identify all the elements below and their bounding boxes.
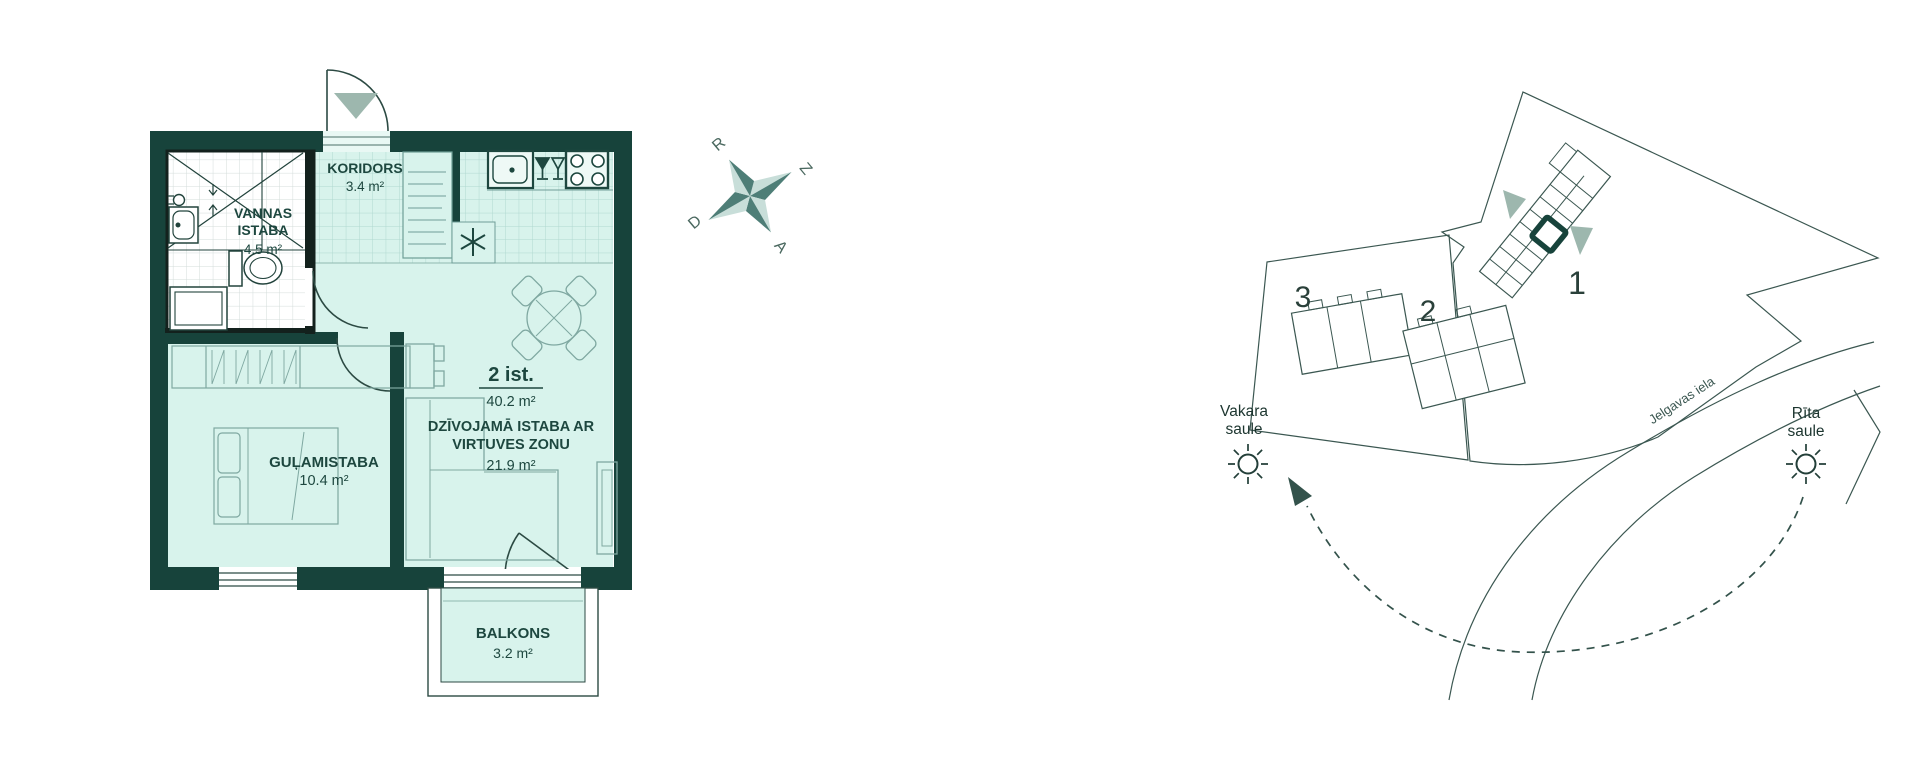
- road-outer-edge: [1449, 342, 1874, 700]
- sun-rays: [1786, 444, 1826, 484]
- washer-inner: [175, 292, 222, 325]
- wall-top-left: [150, 131, 323, 152]
- balcony: BALKONS 3.2 m²: [428, 588, 598, 696]
- evening-sun-label-line1: Vakara: [1220, 403, 1268, 420]
- floorplan-page: VANNAS ISTABA 4.5 m² KORIDORS 3.4 m²: [0, 0, 1920, 768]
- apartment-total-area: 40.2 m²: [486, 394, 535, 410]
- building-1-number: 1: [1568, 265, 1586, 301]
- washbasin-tap: [176, 223, 180, 227]
- view-triangle-west: [1503, 190, 1526, 219]
- apartment-type-label: 2 ist.: [488, 364, 534, 386]
- wall-bottom-2: [298, 567, 443, 590]
- shower-head-icon: [174, 195, 185, 206]
- bathroom-label-line1: VANNAS: [234, 205, 292, 221]
- morning-sun: Rīta saule: [1786, 405, 1826, 484]
- street-name-label: Jelgavas iela: [1646, 373, 1718, 427]
- plan-canvas: VANNAS ISTABA 4.5 m² KORIDORS 3.4 m²: [0, 0, 1920, 768]
- window-post: [581, 567, 587, 590]
- window-post: [438, 567, 444, 590]
- living-label-line1: DZĪVOJAMĀ ISTABA AR: [428, 418, 595, 435]
- wall-corridor-kitchen-divider: [452, 150, 460, 222]
- wall-bottom-3: [582, 567, 632, 590]
- kitchen-sink-tap: [509, 167, 514, 172]
- balcony-area: 3.2 m²: [493, 645, 533, 661]
- evening-sun: Vakara saule: [1220, 403, 1268, 484]
- wall-top-right: [390, 131, 632, 152]
- compass-west-label: R: [709, 134, 729, 154]
- parcel-east-corner: [1846, 390, 1880, 504]
- morning-sun-label-line1: Rīta: [1792, 405, 1821, 422]
- living-area: 21.9 m²: [486, 458, 535, 474]
- corridor-label: KORIDORS: [327, 160, 402, 176]
- building-2-number: 2: [1420, 295, 1437, 328]
- window-post: [213, 567, 219, 590]
- wall-left: [150, 131, 168, 590]
- sun-path-arrowhead: [1288, 477, 1312, 506]
- bathroom-label-line2: ISTABA: [237, 222, 288, 238]
- sun-rays: [1228, 444, 1268, 484]
- balcony-label: BALKONS: [476, 625, 550, 642]
- compass-south-label: D: [685, 212, 705, 232]
- compass-rose: Z R D A: [685, 134, 815, 257]
- road-inner-edge: [1532, 386, 1880, 700]
- entry-direction-triangle: [334, 93, 378, 119]
- morning-sun-icon: [1786, 444, 1826, 484]
- entry-threshold: [323, 131, 390, 152]
- compass-north-label: Z: [796, 160, 815, 179]
- morning-sun-label-line2: saule: [1787, 423, 1824, 440]
- compass-star: [687, 136, 812, 257]
- apartment-floor-plan: VANNAS ISTABA 4.5 m² KORIDORS 3.4 m²: [150, 70, 632, 696]
- bathroom-area: 4.5 m²: [244, 242, 283, 257]
- view-triangle-east: [1570, 226, 1593, 255]
- wall-bedroom-living-divider: [390, 332, 404, 567]
- toilet-tank: [229, 251, 242, 286]
- toilet-bowl-inner: [250, 258, 276, 279]
- wall-bottom-1: [150, 567, 218, 590]
- building-3-entrance: [1337, 295, 1352, 305]
- living-window: [443, 569, 582, 590]
- building-3-entrance: [1367, 289, 1382, 299]
- bedroom-area: 10.4 m²: [299, 473, 348, 489]
- evening-sun-icon: [1228, 444, 1268, 484]
- evening-sun-label-line2: saule: [1225, 421, 1262, 438]
- living-label-line2: VIRTUVES ZONU: [452, 437, 570, 453]
- window-post: [297, 567, 303, 590]
- corridor-area: 3.4 m²: [346, 179, 385, 194]
- bedroom-label: GUĻAMISTABA: [269, 454, 379, 471]
- site-plan: Jelgavas iela 1 2 3: [1220, 92, 1880, 700]
- corridor-wardrobe: [403, 152, 452, 258]
- building-3-number: 3: [1295, 281, 1312, 314]
- building-1: [1469, 141, 1611, 298]
- compass-east-label: A: [771, 238, 791, 257]
